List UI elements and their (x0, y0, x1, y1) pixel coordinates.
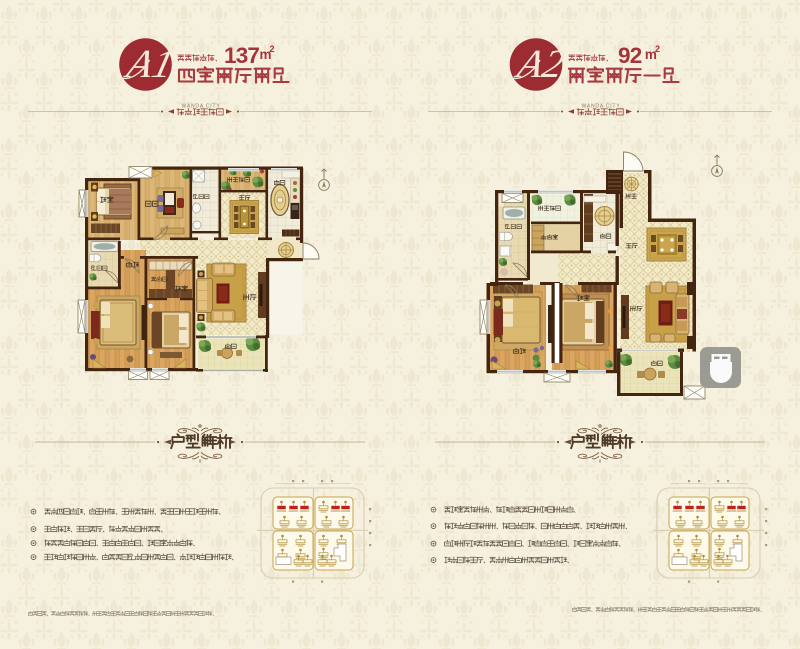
svg-text:2: 2 (655, 44, 660, 54)
svg-text:2: 2 (270, 44, 275, 54)
svg-text:137: 137 (224, 43, 259, 68)
svg-text:92: 92 (618, 43, 642, 68)
